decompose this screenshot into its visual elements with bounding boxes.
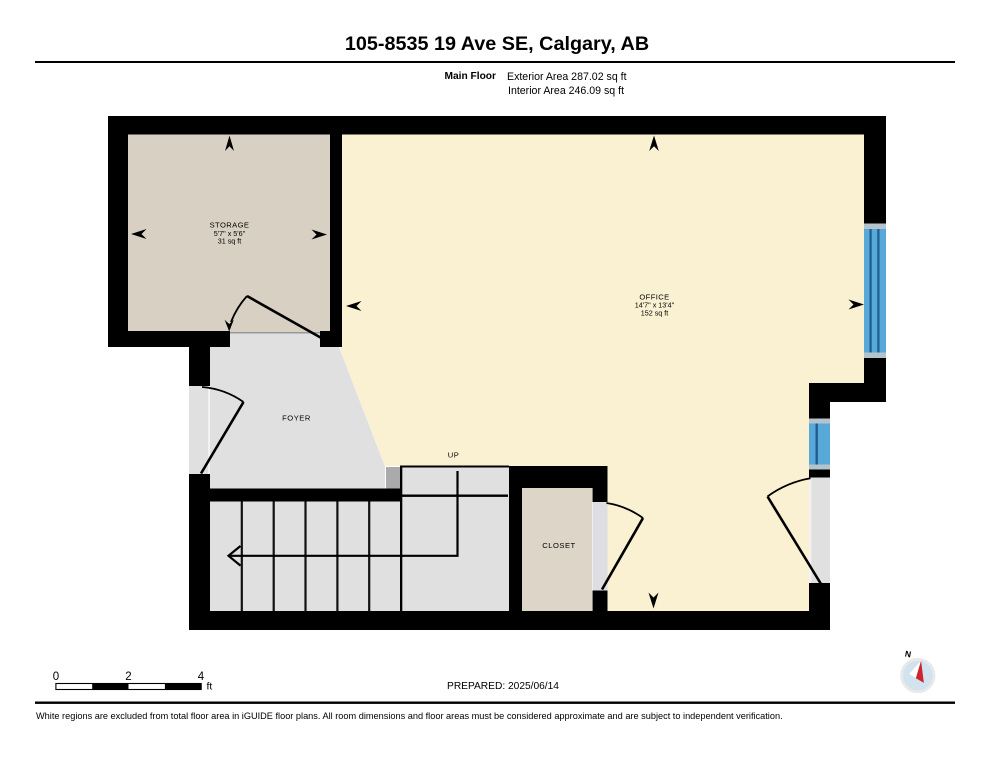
- svg-text:FOYER: FOYER: [282, 414, 311, 423]
- svg-text:31 sq ft: 31 sq ft: [218, 237, 242, 246]
- svg-text:White regions are excluded fro: White regions are excluded from total fl…: [36, 711, 783, 721]
- svg-text:4: 4: [198, 671, 205, 683]
- svg-text:N: N: [904, 649, 912, 660]
- svg-text:ft: ft: [207, 681, 213, 693]
- svg-text:2: 2: [125, 671, 131, 683]
- svg-text:UP: UP: [448, 450, 460, 459]
- svg-text:152 sq ft: 152 sq ft: [641, 308, 669, 317]
- svg-text:CLOSET: CLOSET: [542, 541, 575, 550]
- svg-text:PREPARED: 2025/06/14: PREPARED: 2025/06/14: [447, 681, 559, 692]
- svg-text:0: 0: [53, 671, 59, 683]
